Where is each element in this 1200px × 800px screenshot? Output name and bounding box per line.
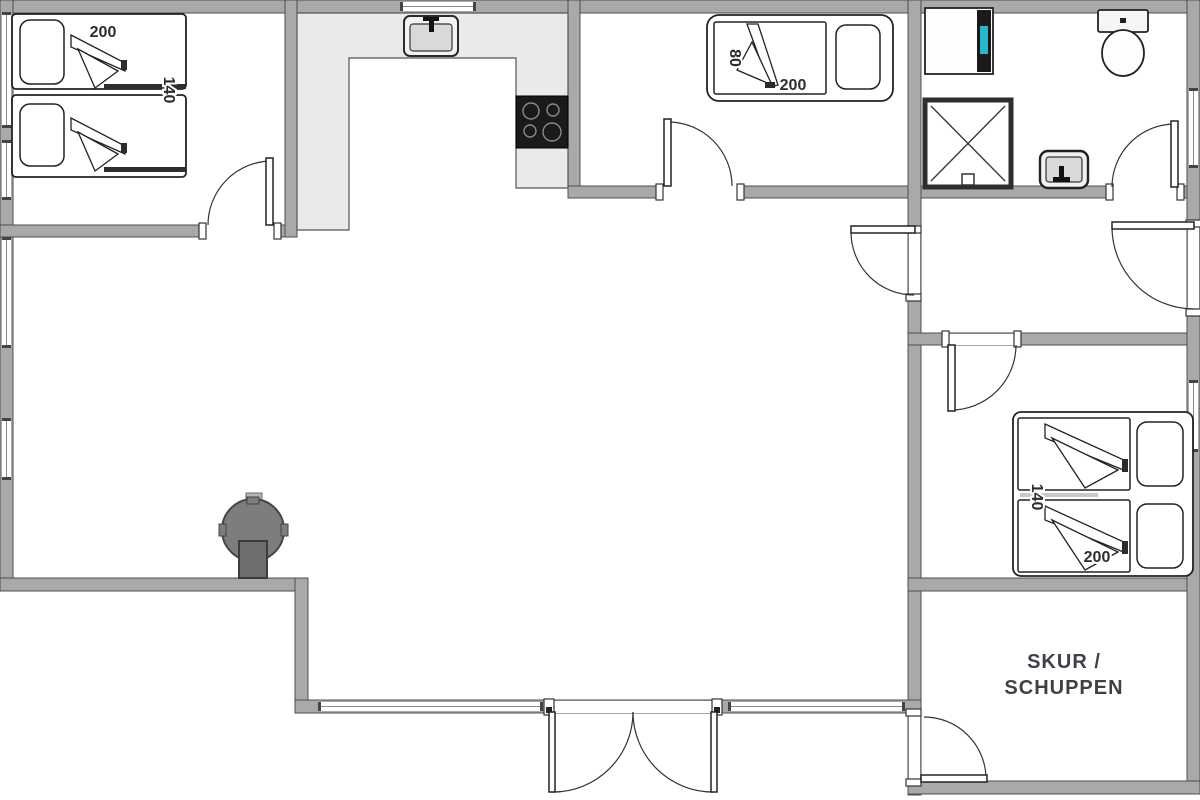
window-living-a [2, 237, 11, 348]
dim-bed2-width: 80 [726, 49, 743, 67]
opening-bedroom2 [662, 185, 738, 199]
dim-bed3-length: 200 [1084, 549, 1111, 566]
door-bedroom3 [948, 345, 1016, 411]
dim-bed1-width: 140 [160, 77, 177, 104]
window-living-south-a [318, 702, 543, 711]
bathroom [925, 8, 1148, 188]
door-terrace-right [633, 712, 717, 792]
wall-bedroom3-bottom [908, 578, 1200, 591]
opening-shed [909, 715, 920, 780]
pillow [1137, 504, 1183, 568]
pillow [1137, 422, 1183, 486]
wall-shed-bottom [908, 781, 1200, 794]
opening-bedroom1 [205, 224, 275, 238]
dim-bed1-length: 200 [90, 24, 117, 41]
door-hall-entrance [1112, 222, 1194, 309]
pillow [20, 104, 64, 166]
opening-hall-entrance [1188, 226, 1199, 310]
door-shed [921, 717, 987, 782]
door-bathroom [1112, 121, 1178, 187]
wall-bedroom1-right [285, 0, 297, 237]
pillow [20, 20, 64, 84]
door-bedroom1 [208, 158, 273, 225]
washing-machine [925, 8, 993, 74]
shower [925, 100, 1011, 187]
window-living-south-b [728, 702, 905, 711]
wall-middle-vertical [908, 0, 921, 795]
floor-plan: 200 140 80 200 140 200 SKUR / SCHUPPEN [0, 0, 1200, 800]
window-bedroom1-a [2, 12, 11, 128]
kitchen [297, 13, 568, 230]
dim-bed2-length: 200 [780, 77, 807, 94]
window-living-b [2, 418, 11, 480]
door-terrace-left [549, 712, 633, 792]
cooktop [516, 96, 568, 148]
wall-step-vertical [295, 578, 308, 713]
wall-top [0, 0, 1200, 13]
opening-bathroom [1112, 185, 1178, 199]
beds [12, 14, 1193, 576]
opening-bedroom3 [948, 334, 1015, 345]
window-bathroom [1189, 88, 1198, 168]
window-bedroom1-b [2, 140, 11, 200]
shower-drain-icon [962, 174, 974, 185]
opening-terrace-doors [553, 701, 713, 713]
stove-flue [239, 541, 267, 578]
dim-bed3-width: 140 [1028, 484, 1045, 511]
room-label-shed-line1: SKUR / [1027, 651, 1101, 673]
window-kitchen [400, 2, 476, 11]
door-bedroom2 [664, 119, 732, 186]
floor-plan-drawing: 200 140 80 200 140 200 SKUR / SCHUPPEN [0, 0, 1200, 800]
toilet [1098, 10, 1148, 76]
bathroom-sink [1040, 151, 1088, 188]
wall-bottom-left [0, 578, 308, 591]
door-living-hall [851, 226, 915, 295]
room-label-shed-line2: SCHUPPEN [1004, 677, 1123, 699]
wood-stove [219, 493, 288, 578]
kitchen-sink [404, 16, 458, 56]
wall-kitchen-right [568, 0, 580, 198]
opening-living-hall [909, 232, 920, 295]
pillow [836, 25, 880, 89]
